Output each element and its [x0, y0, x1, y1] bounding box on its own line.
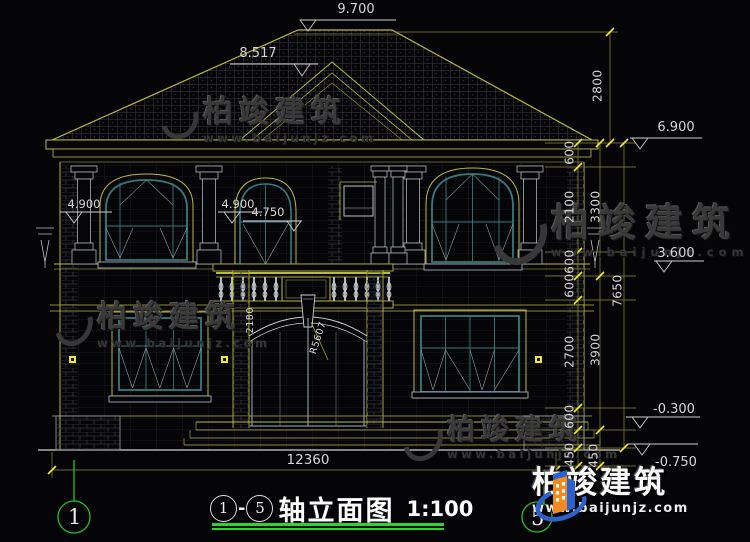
company-logo-icon	[532, 468, 590, 526]
elevation-label-second-floor: 3.600	[650, 247, 702, 261]
watermark-url: www.baijunjz.com	[97, 336, 270, 350]
door-width-label: 2180	[246, 300, 256, 340]
dim-right-inner-1: 2100	[563, 177, 576, 237]
title-underline	[212, 523, 444, 526]
watermark-top-center: 柏竣建筑 www.baijunjz.com	[162, 98, 376, 145]
dim-roof-height: 2800	[591, 56, 604, 116]
dim-right-middle-1: 3900	[589, 320, 602, 380]
elevation-label-ridge: 9.700	[328, 3, 384, 17]
axis-bubble-left-number: 1	[68, 507, 81, 528]
elevation-label-ground: -0.300	[644, 403, 704, 417]
dim-right-inner-3: 600	[563, 256, 576, 316]
cad-elevation-canvas: 柏竣建筑 www.baijunjz.com 柏竣建筑 www.baijunjz.…	[0, 0, 750, 542]
dim-bottom-total: 12360	[278, 453, 338, 468]
dim-right-inner-0: 600	[563, 123, 576, 183]
title-underline	[212, 528, 444, 531]
watermark-swoosh-icon	[154, 92, 206, 146]
dim-right-inner-4: 2700	[563, 322, 576, 382]
dim-right-middle-0: 3300	[589, 177, 602, 237]
watermark-text: 柏竣建筑	[551, 204, 748, 242]
elevation-label-gable: 8.517	[230, 47, 286, 61]
title-scale: 1:100	[406, 497, 473, 521]
elevation-drawing	[0, 0, 750, 542]
watermark-text: 柏竣建筑	[203, 98, 376, 128]
elevation-label-eave: 6.900	[648, 121, 704, 135]
dim-right-total: 7650	[611, 261, 624, 321]
elevation-label-balcony-rail: 4.750	[244, 206, 292, 219]
title-axis-start: 1	[210, 495, 237, 522]
watermark-swoosh-icon	[395, 410, 450, 468]
title-axis-end: 5	[246, 495, 273, 522]
elevation-label-left-pilaster: 4.900	[60, 198, 108, 211]
watermark-swoosh-icon	[48, 297, 100, 353]
watermark-mid-left: 柏竣建筑 www.baijunjz.com	[56, 303, 270, 350]
watermark-url: www.baijunjz.com	[203, 131, 376, 145]
company-logo: 柏竣建筑 www.baijunjz.com	[532, 468, 689, 516]
watermark-mid-right: 柏竣建筑 www.baijunjz.com	[494, 204, 748, 266]
watermark-swoosh-icon	[482, 195, 557, 274]
title-axis-dash: -	[238, 498, 245, 519]
